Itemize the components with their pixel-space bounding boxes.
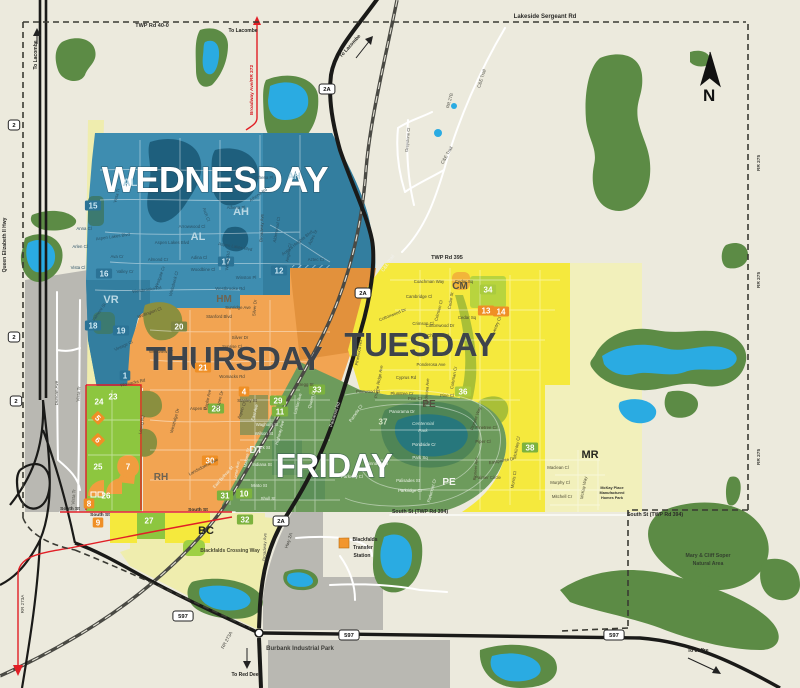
map-label: Arlen Cl — [72, 244, 87, 249]
map-label: Pondside Cr — [412, 442, 436, 447]
map-label: TWP Rd 395 — [431, 255, 463, 261]
map-label: Aspen Lakes Blvd — [155, 240, 190, 245]
svg-text:597: 597 — [344, 633, 354, 639]
area-number-8: 8 — [84, 499, 95, 509]
map-label: Womacks Rd — [219, 374, 245, 379]
hwy-shield-2a: 2A — [273, 516, 289, 526]
map-label: Minto St — [251, 483, 268, 488]
svg-text:15: 15 — [89, 201, 98, 210]
map-label: RR 275 — [756, 449, 762, 466]
map-label: Athena Pl — [227, 205, 246, 210]
svg-text:20: 20 — [175, 322, 184, 331]
map-label: Lakeside Sergeant Rd — [514, 14, 577, 20]
map-label: Broadway Ave — [259, 213, 265, 242]
map-label: Indiana St — [252, 462, 272, 467]
map-label: Cedar Sq — [455, 279, 474, 284]
map-label: Vista Cl — [71, 265, 86, 270]
area-number-10: 10 — [236, 489, 252, 499]
map-label: Queen Elizabeth II Hwy — [2, 217, 8, 272]
svg-text:24: 24 — [95, 397, 104, 406]
map-label: Almond Cr — [148, 257, 169, 262]
map-label: Sunridge Ave — [225, 305, 251, 310]
area-code-pe: PE — [442, 477, 456, 488]
area-number-13: 13 — [478, 306, 494, 316]
area-code-al: AL — [191, 231, 206, 243]
map-label: Arrowwood Cl — [179, 224, 206, 229]
map-label: Pinewood Cl — [356, 389, 380, 394]
map-label: South St — [60, 506, 80, 512]
map-label: Cyprus Rd — [396, 375, 417, 380]
area-number-7: 7 — [126, 462, 131, 471]
area-number-23: 23 — [109, 392, 118, 401]
map-label: To Red Deer — [231, 672, 260, 678]
area-code-rh: RH — [154, 472, 168, 483]
map-label: Manufactured — [600, 491, 626, 495]
svg-text:9: 9 — [96, 518, 101, 527]
svg-text:2A: 2A — [359, 291, 367, 297]
svg-text:2: 2 — [12, 335, 15, 341]
map-label: Transfer — [353, 545, 373, 551]
area-number-27: 27 — [145, 516, 154, 525]
map-label: Pine Cr — [408, 396, 423, 401]
map-label: Cambridge Cl — [406, 294, 432, 299]
svg-text:2: 2 — [12, 123, 15, 129]
area-number-16: 16 — [96, 269, 112, 279]
area-code-bc: BC — [198, 525, 214, 537]
svg-text:26: 26 — [102, 491, 111, 500]
area-number-19: 19 — [113, 326, 129, 336]
map-label: Mary & Cliff Soper — [686, 553, 731, 559]
svg-text:4: 4 — [242, 387, 247, 396]
svg-text:31: 31 — [221, 491, 230, 500]
map-label: Murphy Cl — [550, 480, 570, 485]
map-label: Westview Cr — [149, 349, 174, 354]
svg-text:16: 16 — [100, 269, 109, 278]
area-number-38: 38 — [522, 443, 538, 453]
map-label: Park Sq — [412, 455, 428, 460]
map-label: Sunrise Cl — [222, 344, 242, 349]
svg-text:27: 27 — [145, 516, 154, 525]
north-arrow-label: N — [703, 86, 715, 105]
svg-text:2: 2 — [14, 399, 17, 405]
map-label: Palisades St — [396, 478, 421, 483]
svg-text:21: 21 — [199, 363, 208, 372]
hwy-shield-2a: 2A — [355, 288, 371, 298]
map-label: South St (TWP Rd 394) — [392, 509, 448, 515]
svg-text:7: 7 — [126, 462, 131, 471]
map-label: Stanford Blvd — [206, 314, 232, 319]
map-label: Broadway Ave/RR 272 — [249, 65, 255, 116]
map-label: Cottonwood Dr — [426, 323, 455, 328]
hwy-shield-2a: 2A — [319, 84, 335, 94]
map-label: To Lacombe — [33, 40, 39, 69]
area-number-11: 11 — [272, 407, 288, 417]
svg-text:25: 25 — [94, 462, 103, 471]
svg-text:19: 19 — [117, 326, 126, 335]
hwy-shield-2: 2 — [8, 120, 19, 130]
map-label: Stanley St — [237, 398, 257, 403]
area-number-12: 12 — [271, 266, 287, 276]
area-code-mr: MR — [581, 449, 598, 461]
svg-text:11: 11 — [276, 407, 285, 416]
map-label: Blackfalds Crossing Way — [200, 548, 260, 554]
map-label: Duncan Ave — [54, 380, 59, 405]
map-label: McKay Place — [600, 486, 623, 490]
svg-text:13: 13 — [482, 306, 491, 315]
area-number-34: 34 — [480, 285, 496, 295]
area-number-32: 32 — [237, 515, 253, 525]
map-label: Panorama Dr — [389, 409, 415, 414]
svg-text:597: 597 — [609, 633, 619, 639]
map-label: Park St — [256, 445, 271, 450]
area-number-37: 37 — [379, 417, 388, 426]
map-label: Pinnacle Cl — [366, 461, 388, 466]
map-label: Westbrooke Rd — [215, 286, 245, 291]
hwy-shield-597: 597 — [604, 630, 624, 640]
map-label: Valley Cr — [116, 269, 134, 274]
map-label: RR 275 — [756, 272, 762, 289]
map-label: Palmer Circle — [475, 475, 501, 480]
map-label: Coachman Way — [414, 279, 445, 284]
map-label: Centennial — [412, 421, 435, 426]
map-label: Winston Pl — [236, 275, 257, 280]
collection-zones-map: N WEDNESDAYTHURSDAYTUESDAYFRIDAY ALALAHA… — [0, 0, 800, 688]
map-label: Burbank Industrial Park — [266, 646, 334, 652]
map-label: Piper Cl — [475, 439, 490, 444]
svg-text:18: 18 — [89, 321, 98, 330]
map-label: Shull St — [261, 496, 277, 501]
map-label: Aztec Cr — [308, 257, 325, 262]
transfer-station-icon — [339, 538, 349, 548]
map-canvas: N WEDNESDAYTHURSDAYTUESDAYFRIDAY ALALAHA… — [0, 0, 800, 688]
hwy-shield-2: 2 — [8, 332, 19, 342]
map-label: Pinetree Cl — [475, 425, 496, 430]
area-number-24: 24 — [95, 397, 104, 406]
map-label: Woodbine Cl — [191, 267, 216, 272]
map-label: Gregg St — [296, 382, 314, 387]
day-label-tuesday: TUESDAY — [344, 326, 496, 363]
area-code-ah: AH — [288, 171, 301, 181]
svg-text:37: 37 — [379, 417, 388, 426]
svg-text:36: 36 — [459, 387, 468, 396]
area-code-al: AL — [123, 177, 138, 189]
map-label: Silver Dr — [232, 335, 249, 340]
svg-text:12: 12 — [275, 266, 284, 275]
area-code-hm: HM — [216, 294, 232, 305]
svg-text:23: 23 — [109, 392, 118, 401]
map-label: Mitchell Cr — [552, 494, 573, 499]
hwy-shield-597: 597 — [173, 611, 193, 621]
map-label: South St — [90, 512, 110, 518]
map-label: RR 275 — [756, 155, 762, 172]
map-label: Athena Pl — [255, 175, 274, 180]
area-number-15: 15 — [85, 201, 101, 211]
area-number-14: 14 — [493, 307, 509, 317]
map-label: Wilson St — [255, 431, 274, 436]
svg-text:1: 1 — [123, 371, 128, 380]
map-label: Ponderosa Ave — [416, 362, 446, 367]
map-label: Homes Park — [601, 496, 624, 500]
svg-text:2A: 2A — [323, 87, 331, 93]
map-label: Maclean Cl — [547, 465, 569, 470]
svg-text:38: 38 — [526, 443, 535, 452]
map-label: Cedar Sq — [458, 315, 477, 320]
svg-text:32: 32 — [241, 515, 250, 524]
hwy-shield-597: 597 — [339, 630, 359, 640]
area-number-4: 4 — [239, 387, 250, 397]
svg-text:14: 14 — [497, 307, 506, 316]
map-label: Blackfalds — [352, 537, 377, 543]
svg-text:10: 10 — [240, 489, 249, 498]
roundabout — [255, 629, 263, 637]
map-label: Pine Cl — [440, 393, 454, 398]
map-label: Park — [418, 428, 428, 433]
map-label: South St — [188, 507, 208, 513]
map-label: TWP Rd 40-0 — [135, 23, 169, 29]
area-number-1: 1 — [120, 371, 131, 381]
hwy-shield-2: 2 — [10, 396, 21, 406]
area-number-36: 36 — [455, 387, 471, 397]
area-number-26: 26 — [102, 491, 111, 500]
svg-text:2A: 2A — [277, 519, 285, 525]
area-number-31: 31 — [217, 491, 233, 501]
map-label: Waghorn St — [256, 422, 279, 427]
map-label: Anna Cl — [76, 226, 91, 231]
map-label: Parkridge Cr — [398, 488, 423, 493]
map-label: To Joffre — [687, 648, 708, 654]
map-label: Churchill Pl — [427, 333, 449, 338]
area-number-9: 9 — [93, 518, 104, 528]
svg-text:8: 8 — [87, 499, 92, 508]
area-code-vr: VR — [103, 294, 118, 306]
svg-text:597: 597 — [178, 614, 188, 620]
area-number-18: 18 — [85, 321, 101, 331]
map-label: Broadway Ave — [262, 532, 268, 561]
area-number-21: 21 — [195, 363, 211, 373]
map-label: South St (TWP Rd 394) — [627, 512, 683, 518]
map-label: Adina Cl — [191, 255, 207, 260]
map-label: Parkway Cl — [341, 474, 363, 479]
map-label: Station — [354, 553, 371, 559]
map-label: Natural Area — [693, 561, 724, 567]
map-label: RR 273A — [20, 594, 25, 614]
area-number-25: 25 — [94, 462, 103, 471]
svg-text:34: 34 — [484, 285, 493, 294]
map-label: Ava Cr — [110, 254, 124, 259]
svg-text:29: 29 — [274, 396, 283, 405]
area-number-20: 20 — [171, 322, 187, 332]
area-number-29: 29 — [270, 396, 286, 406]
map-label: To Lacombe — [228, 28, 257, 34]
